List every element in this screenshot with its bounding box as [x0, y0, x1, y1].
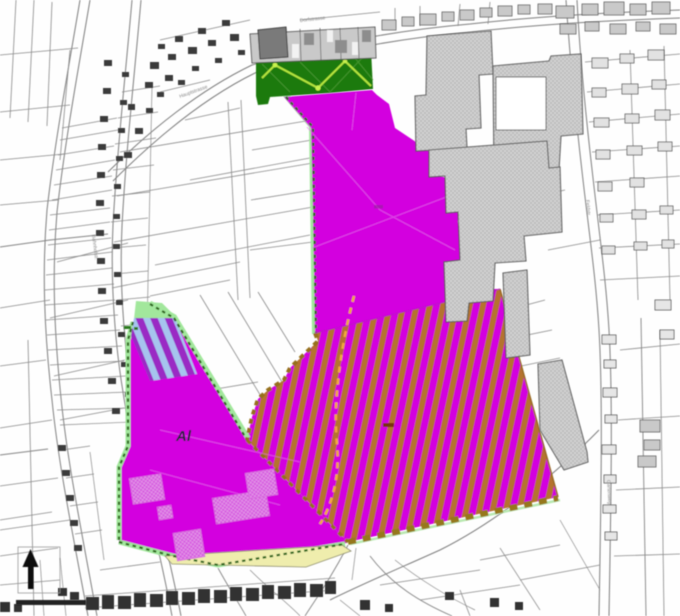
svg-text:Al: Al	[175, 428, 192, 445]
